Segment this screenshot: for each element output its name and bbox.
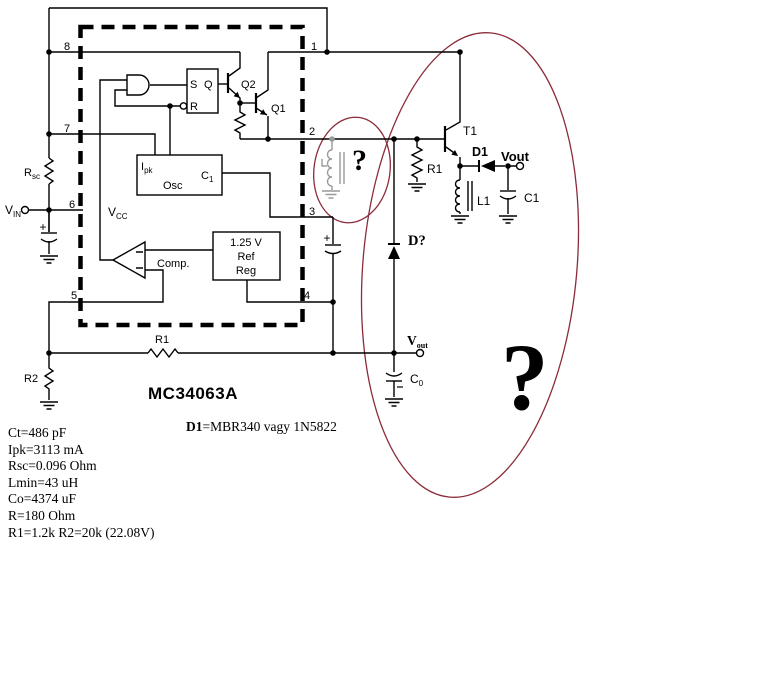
wire-feedback-loop — [100, 80, 127, 260]
parameter-list: Ct=486 pF Ipk=3113 mA Rsc=0.096 Ohm Lmin… — [8, 425, 154, 540]
r2-label: R2 — [24, 373, 38, 385]
vout-top-label: Vout — [501, 149, 530, 164]
feedback-r1-label: R1 — [155, 334, 169, 346]
c1-label: C1 — [524, 191, 540, 205]
diode-d-unknown — [388, 246, 400, 259]
ref-line2: Ref — [237, 251, 255, 263]
osc-label: Osc — [163, 180, 183, 192]
and-gate — [127, 75, 149, 95]
q1-label: Q1 — [271, 103, 286, 115]
vin-terminal — [22, 207, 29, 214]
wire-pin4 — [247, 280, 333, 302]
pin-4-label: 4 — [304, 290, 310, 302]
pin-1-label: 1 — [311, 41, 317, 53]
param-lmin: Lmin=43 uH — [8, 475, 78, 490]
vin-label: VIN — [5, 203, 21, 219]
input-cap-plus: + — [39, 220, 46, 234]
vcc-label: VCC — [108, 205, 128, 221]
vout-bottom-label: Vout — [407, 333, 428, 350]
q1-emitter-arrow — [260, 109, 267, 115]
question-mark-small: ? — [352, 144, 367, 177]
disabled-node — [329, 136, 335, 142]
wire-top-rail — [49, 8, 327, 52]
latch-r-label: R — [190, 101, 198, 113]
pin-5-label: 5 — [71, 290, 77, 302]
osc-ct-label: C1 — [201, 170, 214, 184]
param-co: Co=4374 uF — [8, 491, 76, 506]
comparator-label: Comp. — [157, 258, 189, 270]
c0-label: C0 — [410, 372, 424, 388]
param-rsc: Rsc=0.096 Ohm — [8, 458, 97, 473]
param-r1r2: R1=1.2k R2=20k (22.08V) — [8, 525, 154, 540]
ic-name-title: MC34063A — [148, 384, 238, 403]
pin-3-label: 3 — [309, 206, 315, 218]
ref-line3: Reg — [236, 265, 256, 277]
comparator — [113, 242, 145, 278]
osc-ipk-label: Ipk — [141, 161, 154, 175]
param-ipk: Ipk=3113 mA — [8, 442, 84, 457]
latch-r-inverter-bubble — [180, 103, 186, 109]
circuit-schematic-mc34063a: 8 7 6 5 1 2 3 4 S Q R Ipk Osc C1 1.25 V … — [0, 0, 771, 695]
schematic-canvas: 8 7 6 5 1 2 3 4 S Q R Ipk Osc C1 1.25 V … — [0, 0, 771, 695]
latch-s-label: S — [190, 79, 197, 91]
wires — [29, 8, 516, 400]
t1-label: T1 — [463, 124, 477, 138]
latch-q-label: Q — [204, 79, 213, 91]
q2-label: Q2 — [241, 79, 256, 91]
pin-7-label: 7 — [64, 123, 70, 135]
diode-d1 — [481, 160, 495, 172]
terminals — [22, 163, 524, 357]
l1-label: L1 — [477, 194, 491, 208]
vout-bottom-terminal — [417, 350, 424, 357]
ext-r1-label: R1 — [427, 162, 443, 176]
ref-line1: 1.25 V — [230, 237, 262, 249]
param-ct: Ct=486 pF — [8, 425, 67, 440]
d1-part-note: D1=MBR340 vagy 1N5822 — [186, 419, 337, 434]
annotation-ellipse-big — [343, 24, 597, 507]
rsc-label: Rsc — [24, 167, 40, 181]
pin-6-label: 6 — [69, 199, 75, 211]
disabled-inductor-branch — [322, 139, 344, 198]
junction-dots — [46, 49, 511, 356]
wire-pin7 — [49, 134, 155, 155]
ct-cap-plus: + — [323, 231, 330, 245]
d1-label: D1 — [472, 145, 488, 159]
param-r: R=180 Ohm — [8, 508, 76, 523]
pin-2-label: 2 — [309, 126, 315, 138]
question-mark-big: ? — [501, 324, 549, 430]
pin-8-label: 8 — [64, 41, 70, 53]
wire-pin5 — [49, 270, 163, 353]
unknown-diode-label: D? — [408, 233, 426, 249]
